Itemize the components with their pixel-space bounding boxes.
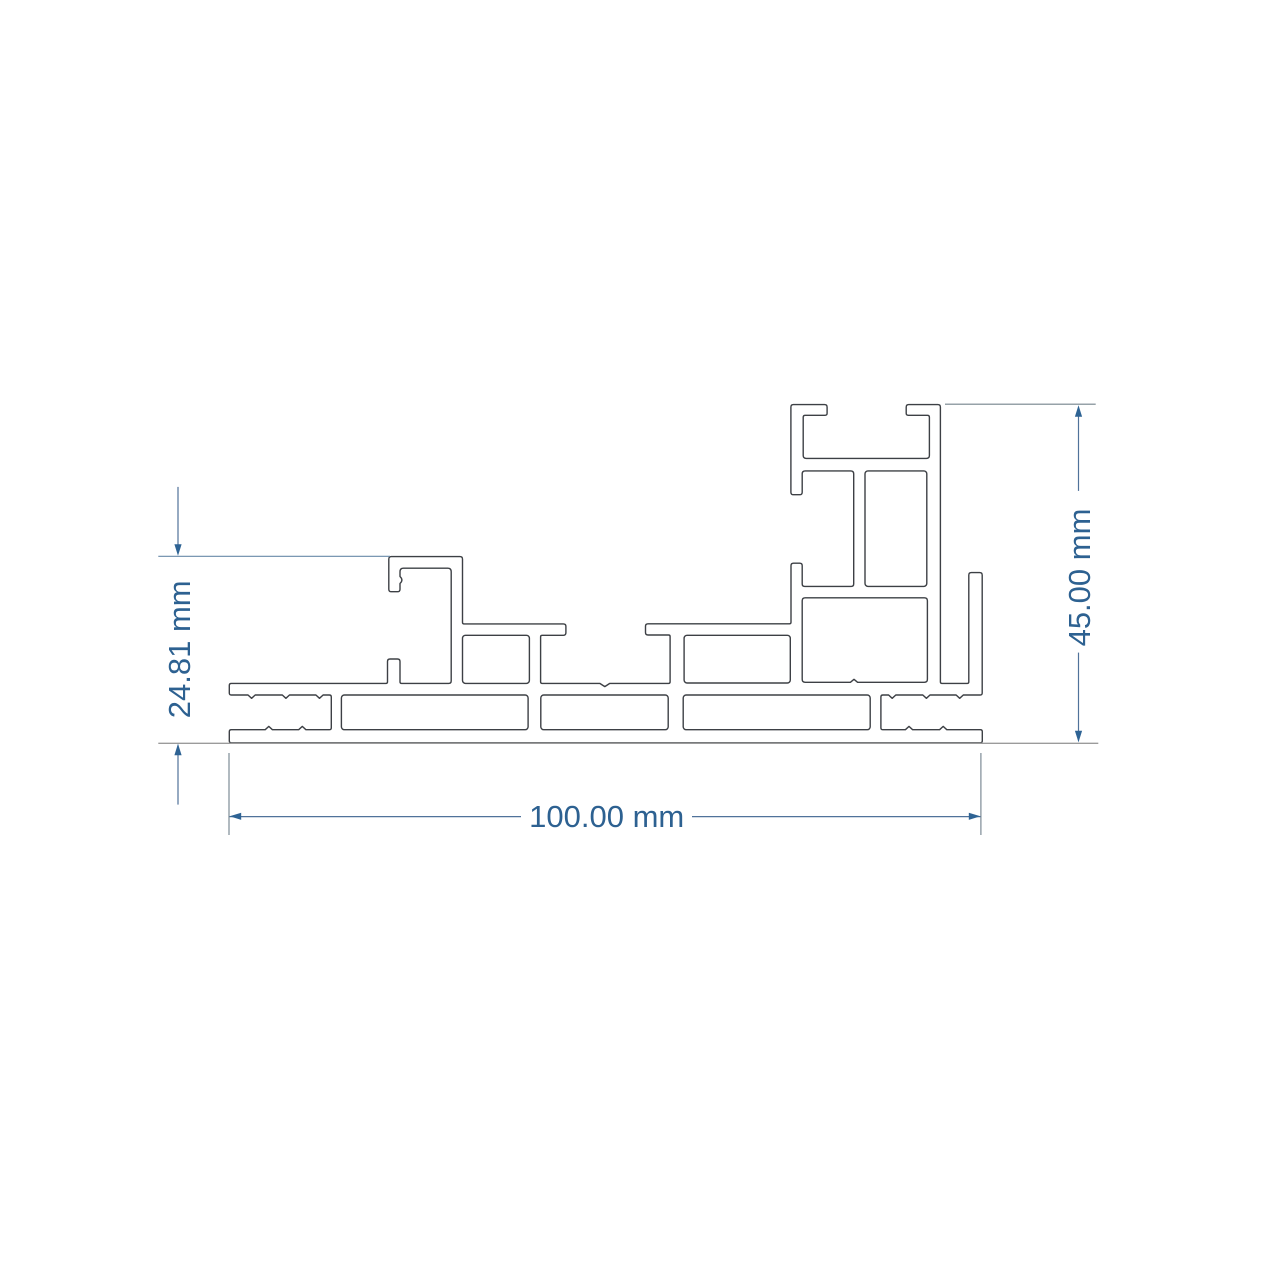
- svg-text:45.00 mm: 45.00 mm: [1062, 509, 1097, 647]
- svg-text:24.81 mm: 24.81 mm: [162, 580, 197, 718]
- svg-text:100.00 mm: 100.00 mm: [529, 799, 684, 834]
